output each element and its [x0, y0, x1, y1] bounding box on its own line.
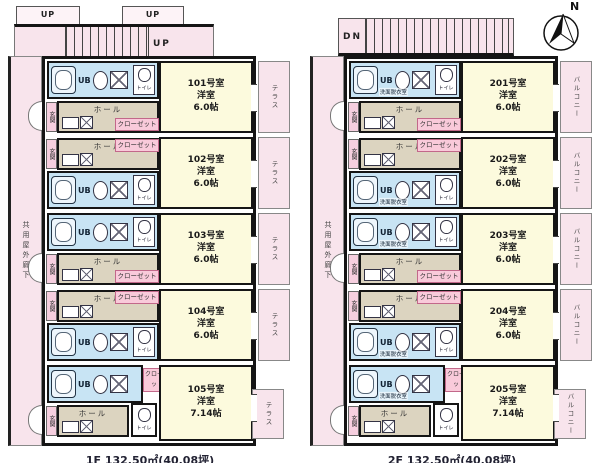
washbasin-icon [93, 223, 108, 242]
hall: ホール [57, 405, 129, 437]
washing-machine-icon [412, 223, 430, 241]
toilet-label: トイレ [136, 194, 151, 202]
balcony-label: バルコニー [565, 393, 575, 436]
room-203: 203号室洋室6.0帖 [461, 213, 555, 285]
bathroom-cluster: UB 洗面脱衣室 トイレ [349, 171, 461, 209]
washing-machine-icon [412, 71, 430, 89]
stove-icon [382, 420, 395, 433]
balcony-strip: バルコニー [560, 213, 592, 285]
unit-bath-label: UB [78, 186, 91, 195]
stove-icon [382, 305, 395, 318]
washroom-label: 洗面脱衣室 [379, 240, 408, 248]
unit-bath-label: UB [380, 186, 393, 195]
kitchen-icons [62, 268, 93, 281]
stair-direction-label: DN [343, 32, 362, 42]
room-label: 104号室洋室6.0帖 [188, 307, 225, 342]
unit-202: UB 洗面脱衣室 トイレ 玄関 ホール クローゼット 202号室洋室6.0帖 [347, 135, 555, 211]
kitchen-sink-icon [364, 154, 381, 166]
washbasin-icon [93, 71, 108, 90]
entrance-label: 玄関 [348, 139, 359, 169]
unit-203: UB 洗面脱衣室 トイレ 玄関 ホール クローゼット 203号室洋室6.0帖 [347, 211, 555, 287]
stove-icon [382, 116, 395, 129]
unit-105: UB 玄関 ホール トイレ クローゼット 105号室洋室7.14帖 [45, 363, 253, 443]
hall: ホール [359, 405, 431, 437]
kitchen-icons [364, 420, 395, 433]
window [251, 236, 257, 264]
bathroom-cluster: UB 洗面脱衣室 トイレ [349, 323, 461, 361]
toilet-icon [440, 68, 453, 82]
balcony-label: バルコニー [571, 76, 581, 119]
kitchen-icons [62, 420, 93, 433]
bathroom-cluster: UB トイレ [47, 213, 159, 251]
kitchen-icons [364, 268, 395, 281]
room-label: 202号室洋室6.0帖 [490, 155, 527, 190]
north-label: N [570, 0, 579, 13]
unit-101: UB トイレ 玄関 ホール クローゼット 101号室洋室6.0帖 [45, 59, 253, 135]
staircase: DN [338, 18, 514, 56]
toilet-icon [138, 178, 151, 192]
room-202: 202号室洋室6.0帖 [461, 137, 555, 209]
kitchen-icons [364, 305, 395, 318]
unit-bath-label: UB [380, 338, 393, 347]
terrace-label: テラス [263, 401, 273, 427]
unit-201: UB 洗面脱衣室 トイレ 玄関 ホール クローゼット 201号室洋室6.0帖 [347, 59, 555, 135]
bathroom-cluster: UB 洗面脱衣室 [349, 365, 445, 403]
toilet-icon [440, 178, 453, 192]
bathroom-cluster: UB 洗面脱衣室 トイレ [349, 61, 461, 99]
entrance-label: 玄関 [348, 254, 359, 284]
hall-label: ホール [361, 104, 459, 115]
closet-label: クローゼット [115, 291, 159, 304]
toilet-label: トイレ [438, 346, 453, 354]
room-label: 203号室洋室6.0帖 [490, 231, 527, 266]
stair-treads [65, 27, 149, 59]
bathroom-cluster: UB トイレ [47, 323, 159, 361]
washbasin-icon [395, 333, 410, 352]
washing-machine-icon [110, 71, 128, 89]
stove-icon [80, 420, 93, 433]
hall-label: ホール [59, 408, 127, 419]
unit-103: UB トイレ 玄関 ホール クローゼット 103号室洋室6.0帖 [45, 211, 253, 287]
toilet-icon [440, 330, 453, 344]
window [251, 160, 257, 188]
window [553, 394, 559, 422]
washbasin-icon [395, 181, 410, 200]
entrance-label: 玄関 [46, 102, 57, 132]
kitchen-icons [62, 153, 93, 166]
entrance-steps-label: UP [16, 6, 80, 24]
room-label: 103号室洋室6.0帖 [188, 231, 225, 266]
toilet-cell: トイレ [133, 327, 155, 357]
terrace-strip: テラス [258, 61, 290, 133]
bathtub-icon [51, 218, 76, 246]
closet-label: クローゼット [417, 118, 461, 131]
entrance-label: 玄関 [46, 291, 57, 321]
toilet-label: トイレ [136, 424, 151, 432]
washbasin-icon [93, 181, 108, 200]
hall-label: ホール [59, 256, 157, 267]
washing-machine-icon [110, 223, 128, 241]
entrance-label: 玄関 [46, 139, 57, 169]
kitchen-sink-icon [364, 269, 381, 281]
toilet-icon [440, 220, 453, 234]
balcony-label: バルコニー [571, 152, 581, 195]
toilet-cell: トイレ [435, 65, 457, 95]
bathroom-cluster: UB トイレ [47, 61, 159, 99]
floor-plan-sheet: UP UP UP 共用屋外廊下 UB トイレ 玄関 ホール [0, 0, 600, 463]
toilet-label: トイレ [438, 424, 453, 432]
washing-machine-icon [110, 375, 128, 393]
unit-bath-label: UB [78, 338, 91, 347]
building-outline-2f: UB 洗面脱衣室 トイレ 玄関 ホール クローゼット 201号室洋室6.0帖 [344, 56, 558, 446]
washbasin-icon [395, 223, 410, 242]
unit-bath-label: UB [78, 76, 91, 85]
closet-label: クローゼット [115, 270, 159, 283]
washing-machine-icon [412, 333, 430, 351]
room-105: 105号室洋室7.14帖 [159, 365, 253, 441]
toilet-label: トイレ [438, 236, 453, 244]
hall-label: ホール [361, 256, 459, 267]
kitchen-sink-icon [364, 306, 381, 318]
room-205: 205号室洋室7.14帖 [461, 365, 555, 441]
bathtub-icon [51, 370, 76, 398]
closet-label: クローゼット [115, 139, 159, 152]
room-label: 201号室洋室6.0帖 [490, 79, 527, 114]
toilet-icon [138, 408, 151, 422]
terrace-label: テラス [269, 84, 279, 110]
toilet-icon [138, 330, 151, 344]
room-103: 103号室洋室6.0帖 [159, 213, 253, 285]
entrance-label: 玄関 [348, 291, 359, 321]
unit-204: UB 洗面脱衣室 トイレ 玄関 ホール クローゼット 204号室洋室6.0帖 [347, 287, 555, 363]
bathroom-cluster: UB 洗面脱衣室 トイレ [349, 213, 461, 251]
stair-treads [365, 19, 509, 53]
toilet-cell: トイレ [133, 217, 155, 247]
compass-icon [534, 2, 594, 54]
toilet-label: トイレ [136, 84, 151, 92]
bathtub-icon [353, 218, 378, 246]
bathtub-icon [353, 370, 378, 398]
unit-102: UB トイレ 玄関 ホール クローゼット 102号室洋室6.0帖 [45, 135, 253, 211]
balcony-label: バルコニー [571, 304, 581, 347]
floor-area-caption-1f: 1F 132.50㎡(40.08坪) [2, 452, 298, 463]
washbasin-icon [93, 375, 108, 394]
toilet-cell: トイレ [133, 175, 155, 205]
hall-label: ホール [59, 104, 157, 115]
unit-bath-label: UB [380, 380, 393, 389]
stove-icon [80, 116, 93, 129]
kitchen-icons [364, 116, 395, 129]
entrance-label: 玄関 [46, 406, 57, 436]
room-101: 101号室洋室6.0帖 [159, 61, 253, 133]
washbasin-icon [93, 333, 108, 352]
toilet-label: トイレ [136, 346, 151, 354]
toilet-cell: トイレ [433, 403, 459, 437]
terrace-label: テラス [269, 312, 279, 338]
stair-direction-label: UP [153, 39, 171, 49]
room-204: 204号室洋室6.0帖 [461, 289, 555, 361]
bathtub-icon [353, 328, 378, 356]
toilet-icon [138, 68, 151, 82]
stove-icon [80, 153, 93, 166]
room-102: 102号室洋室6.0帖 [159, 137, 253, 209]
closet-label: クローゼット [417, 270, 461, 283]
kitchen-sink-icon [62, 154, 79, 166]
unit-bath-label: UB [380, 228, 393, 237]
unit-205: UB 洗面脱衣室 玄関 ホール トイレ クローゼット 205号室洋室7.14帖 [347, 363, 555, 443]
stove-icon [80, 305, 93, 318]
unit-bath-label: UB [78, 228, 91, 237]
toilet-label: トイレ [438, 194, 453, 202]
toilet-label: トイレ [136, 236, 151, 244]
compass-rose-icon: N [534, 2, 594, 54]
washing-machine-icon [412, 375, 430, 393]
toilet-icon [440, 408, 453, 422]
kitchen-icons [62, 305, 93, 318]
terrace-label: テラス [269, 236, 279, 262]
bathroom-cluster: UB [47, 365, 143, 403]
floor-plan-2f: DN 共用屋外廊下 UB 洗面脱衣室 トイレ 玄関 ホール [304, 4, 600, 456]
unit-bath-label: UB [380, 76, 393, 85]
staircase: UP [14, 24, 214, 60]
bathtub-icon [353, 66, 378, 94]
toilet-cell: トイレ [435, 327, 457, 357]
terrace-strip: テラス [258, 213, 290, 285]
room-label: 105号室洋室7.14帖 [188, 385, 225, 420]
room-104: 104号室洋室6.0帖 [159, 289, 253, 361]
kitchen-icons [364, 153, 395, 166]
kitchen-sink-icon [364, 117, 381, 129]
floor-plan-1f: UP UP UP 共用屋外廊下 UB トイレ 玄関 ホール [2, 4, 298, 456]
unit-bath-label: UB [78, 380, 91, 389]
balcony-strip: バルコニー [560, 137, 592, 209]
stove-icon [382, 153, 395, 166]
toilet-cell: トイレ [435, 175, 457, 205]
toilet-cell: トイレ [133, 65, 155, 95]
toilet-cell: トイレ [131, 403, 157, 437]
terrace-strip: テラス [258, 137, 290, 209]
toilet-label: トイレ [438, 84, 453, 92]
toilet-cell: トイレ [435, 217, 457, 247]
washing-machine-icon [110, 333, 128, 351]
washroom-label: 洗面脱衣室 [379, 350, 408, 358]
entrance-label: 玄関 [348, 406, 359, 436]
building-outline-1f: UB トイレ 玄関 ホール クローゼット 101号室洋室6.0帖 [42, 56, 256, 446]
window [251, 84, 257, 112]
window [553, 84, 559, 112]
window [553, 236, 559, 264]
balcony-strip: バルコニー [560, 61, 592, 133]
stove-icon [382, 268, 395, 281]
room-201: 201号室洋室6.0帖 [461, 61, 555, 133]
balcony-strip: バルコニー [560, 289, 592, 361]
washbasin-icon [395, 375, 410, 394]
entrance-label: 玄関 [46, 254, 57, 284]
bathroom-cluster: UB トイレ [47, 171, 159, 209]
terrace-strip: テラス [258, 289, 290, 361]
entrance-label: 玄関 [348, 102, 359, 132]
bathtub-icon [353, 176, 378, 204]
kitchen-sink-icon [62, 306, 79, 318]
kitchen-sink-icon [62, 117, 79, 129]
room-label: 102号室洋室6.0帖 [188, 155, 225, 190]
closet-label: クローゼット [115, 118, 159, 131]
window [251, 394, 257, 422]
room-label: 204号室洋室6.0帖 [490, 307, 527, 342]
bathtub-icon [51, 176, 76, 204]
floor-area-caption-2f: 2F 132.50㎡(40.08坪) [304, 452, 600, 463]
terrace-label: テラス [269, 160, 279, 186]
entrance-steps-label: UP [122, 6, 184, 24]
room-label: 205号室洋室7.14帖 [490, 385, 527, 420]
hall-label: ホール [361, 408, 429, 419]
window [553, 312, 559, 340]
bathtub-icon [51, 66, 76, 94]
washroom-label: 洗面脱衣室 [379, 88, 408, 96]
toilet-icon [138, 220, 151, 234]
kitchen-sink-icon [62, 421, 79, 433]
bathtub-icon [51, 328, 76, 356]
unit-104: UB トイレ 玄関 ホール クローゼット 104号室洋室6.0帖 [45, 287, 253, 363]
kitchen-sink-icon [364, 421, 381, 433]
washing-machine-icon [110, 181, 128, 199]
room-label: 101号室洋室6.0帖 [188, 79, 225, 114]
kitchen-sink-icon [62, 269, 79, 281]
washbasin-icon [395, 71, 410, 90]
balcony-label: バルコニー [571, 228, 581, 271]
closet-label: クローゼット [417, 139, 461, 152]
washroom-label: 洗面脱衣室 [379, 198, 408, 206]
stove-icon [80, 268, 93, 281]
window [251, 312, 257, 340]
closet-label: クローゼット [417, 291, 461, 304]
kitchen-icons [62, 116, 93, 129]
window [553, 160, 559, 188]
washing-machine-icon [412, 181, 430, 199]
washroom-label: 洗面脱衣室 [379, 392, 408, 400]
